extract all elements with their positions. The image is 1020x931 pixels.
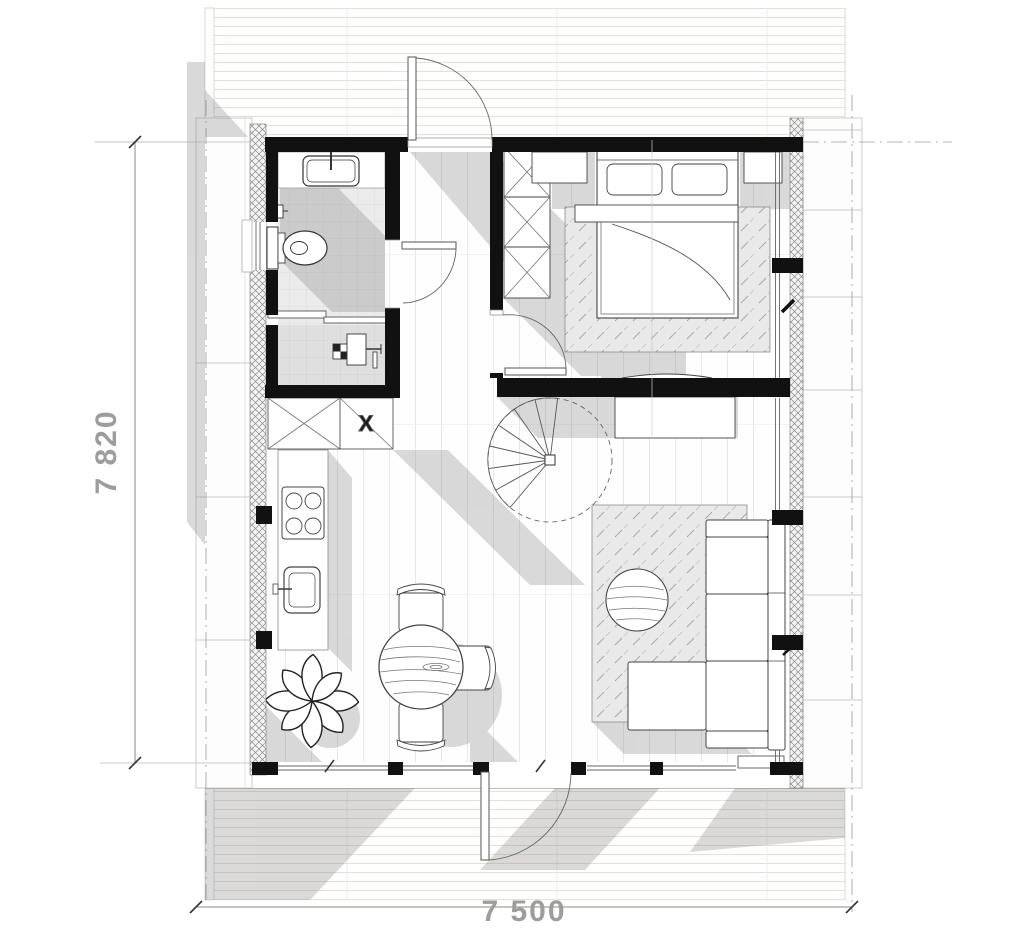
cooktop bbox=[282, 487, 324, 539]
wall-right-post-1 bbox=[772, 258, 803, 273]
ottoman bbox=[628, 662, 706, 730]
pillow-left bbox=[607, 164, 662, 195]
stair-center-post bbox=[545, 455, 555, 465]
wall-partition bbox=[497, 378, 790, 397]
floor-plan-page: X bbox=[0, 0, 1020, 931]
wall-right-hatched bbox=[790, 118, 803, 788]
bathroom-door-leaf bbox=[402, 242, 456, 249]
wall-bottom-corner-left bbox=[252, 762, 278, 775]
sofa-armrest-top bbox=[706, 520, 768, 537]
utility-floor-tint bbox=[278, 325, 385, 385]
terrace-door-leaf bbox=[481, 772, 489, 860]
double-bed bbox=[575, 149, 738, 318]
wall-right-post-top bbox=[772, 137, 803, 152]
closet-x-mark: X bbox=[359, 411, 374, 436]
blanket-fold bbox=[575, 205, 738, 222]
sofa-cushion-1 bbox=[706, 537, 768, 594]
window-sill-bathroom bbox=[242, 220, 252, 272]
wall-left-post-1 bbox=[256, 506, 272, 524]
wall-top-left bbox=[265, 137, 408, 152]
closet: X bbox=[268, 398, 393, 449]
wall-bathroom-lining-mid bbox=[266, 270, 278, 315]
wall-hall bbox=[490, 152, 503, 315]
wall-bathroom-right-lower bbox=[385, 308, 400, 398]
mattress bbox=[597, 207, 738, 318]
pillow-right bbox=[672, 164, 727, 195]
window-glass-bottom-2 bbox=[403, 766, 473, 770]
wall-hall-hinge-stub bbox=[490, 373, 503, 378]
top-deck-planks bbox=[205, 8, 845, 137]
wall-bathroom-lining-lower bbox=[266, 325, 278, 385]
wall-right-post-3 bbox=[772, 635, 803, 650]
floor-drain bbox=[333, 344, 348, 359]
dining-table bbox=[379, 625, 463, 709]
window-glass-bottom-3 bbox=[587, 766, 650, 770]
bedroom-door-leaf bbox=[505, 368, 566, 375]
dimension-label-width: 7 500 bbox=[481, 895, 566, 928]
window-glass-bottom-1 bbox=[278, 766, 388, 770]
console-cabinet bbox=[615, 397, 735, 438]
wall-bottom-post-3 bbox=[571, 762, 586, 775]
wall-bottom-post-4 bbox=[650, 762, 663, 775]
sofa-armrest-bottom bbox=[706, 731, 768, 748]
wall-left-post-2 bbox=[256, 631, 272, 649]
wall-bottom-corner-right bbox=[770, 762, 803, 775]
nightstand-left bbox=[532, 152, 587, 183]
wall-bathroom-bottom bbox=[265, 385, 398, 398]
wall-bottom-post-1 bbox=[388, 762, 403, 775]
wall-right-post-2 bbox=[772, 510, 803, 525]
entry-threshold bbox=[408, 138, 492, 147]
wall-top-right bbox=[492, 137, 803, 152]
sofa-cushion-3 bbox=[706, 661, 768, 731]
dimension-label-height: 7 820 bbox=[90, 409, 123, 494]
wall-bathroom-right-upper bbox=[385, 152, 400, 240]
nightstand-right bbox=[744, 152, 782, 183]
sofa-cushion-2 bbox=[706, 594, 768, 661]
floor-plan-drawing: X bbox=[0, 0, 1020, 931]
kitchen-counter bbox=[278, 450, 328, 650]
wall-bathroom-lining-upper bbox=[266, 152, 278, 222]
kitchen bbox=[273, 450, 328, 650]
window-glass-bottom-4 bbox=[663, 766, 736, 770]
pouf bbox=[606, 569, 668, 631]
top-deck bbox=[205, 8, 845, 137]
entry-door-leaf bbox=[408, 57, 416, 140]
